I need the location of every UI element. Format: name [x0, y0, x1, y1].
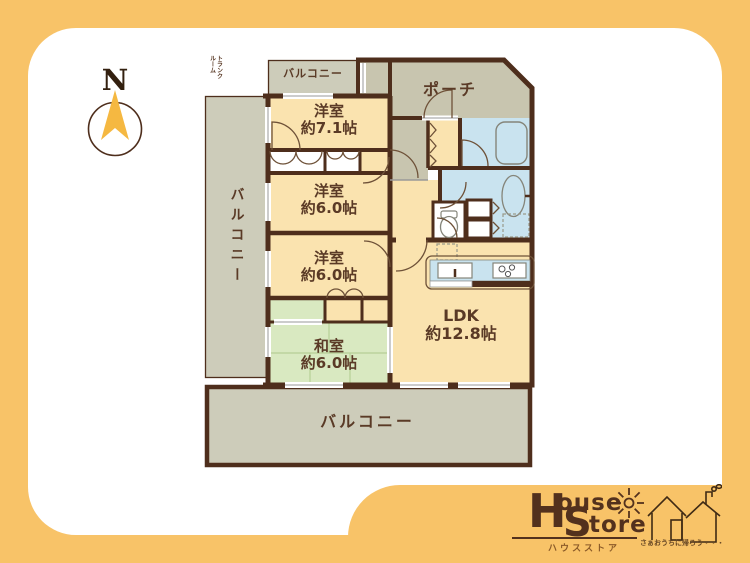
western-room-2-name: 洋室 — [314, 182, 344, 200]
logo-underline — [512, 537, 637, 539]
western-room-3-size: 約6.0帖 — [268, 267, 390, 284]
north-arrow-icon — [101, 90, 129, 140]
compass-graphic — [80, 90, 150, 162]
western-room-3-label: 洋室 約6.0帖 — [268, 250, 390, 285]
balcony-bottom-label: バルコニー — [210, 413, 525, 431]
toilet-icon — [441, 217, 458, 238]
western-room-3-name: 洋室 — [314, 249, 344, 267]
houses-icon — [646, 484, 722, 544]
western-room-2-size: 約6.0帖 — [268, 200, 390, 217]
ldk-label: LDK 約12.8帖 — [395, 307, 527, 344]
porch-label: ポーチ — [400, 81, 500, 99]
western-room-2-label: 洋室 約6.0帖 — [268, 183, 390, 218]
japanese-room-name: 和室 — [314, 337, 344, 355]
logo-tagline: さぁおうちに帰ろう・・・ — [640, 538, 724, 548]
western-room-1-label: 洋室 約7.1帖 — [268, 103, 390, 138]
balcony-top-label: バルコニー — [268, 68, 358, 81]
western-room-1-name: 洋室 — [314, 102, 344, 120]
balcony-left-label: バルコニー — [205, 96, 268, 378]
kitchen-counter — [426, 256, 534, 289]
floor-plan: バルコニー トランク ルーム ポーチ 洋室 約7.1帖 洋室 約6.0帖 洋室 … — [200, 55, 540, 470]
western-room-1-size: 約7.1帖 — [268, 120, 390, 137]
sun-icon — [612, 486, 646, 520]
ldk-size: 約12.8帖 — [395, 325, 527, 343]
japanese-room-label: 和室 約6.0帖 — [268, 338, 390, 373]
poster-frame: N — [0, 0, 750, 563]
logo-katakana: ハウスストア — [548, 541, 620, 554]
japanese-room-size: 約6.0帖 — [268, 355, 390, 372]
north-compass: N — [80, 66, 150, 162]
ldk-name: LDK — [443, 306, 479, 325]
